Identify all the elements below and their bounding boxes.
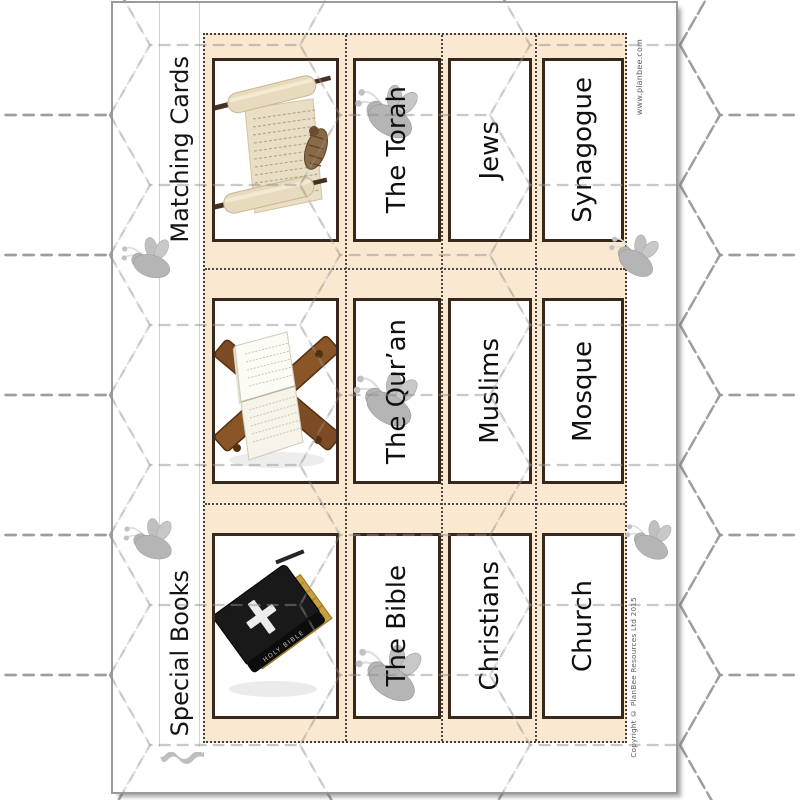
title-ribbon: Matching Cards Special Books (159, 3, 200, 747)
word-card: Muslims (448, 298, 532, 484)
lesson-title: Special Books (168, 570, 192, 736)
quran-on-stand-image (215, 301, 336, 481)
lesson-title-slot: Special Books (160, 561, 199, 745)
word-card: Mosque (542, 298, 624, 484)
unit-title: Matching Cards (168, 56, 192, 243)
word-card-label: Muslims (477, 338, 503, 444)
unit-title-slot: Matching Cards (160, 37, 199, 261)
word-card-label: Jews (477, 121, 503, 179)
word-card-label: Church (570, 580, 596, 672)
image-card-quran (212, 298, 339, 484)
word-card-label: The Bible (384, 565, 410, 686)
image-card-torah (212, 58, 339, 242)
word-card-label: Mosque (570, 341, 596, 442)
word-card-label: The Torah (384, 86, 410, 213)
word-card: Church (542, 533, 624, 719)
cut-line-vertical-1 (345, 35, 347, 741)
word-card: Christians (448, 533, 532, 719)
worksheet-page: Matching Cards Special Books www.planbee… (113, 3, 676, 792)
image-card-bible: HOLY BIBLE (212, 533, 339, 719)
ribbon-wave-decoration (157, 747, 204, 767)
word-card-label: Christians (477, 561, 503, 690)
cut-line-horizontal-1 (205, 268, 625, 270)
cut-line-vertical-2 (441, 35, 443, 741)
bee-icon (120, 515, 185, 567)
word-card-label: Synagogue (570, 77, 596, 223)
word-card-label: The Qur’an (384, 319, 410, 464)
torah-scroll-image (215, 61, 336, 239)
copyright-text: Copyright © PlanBee Resources Ltd 2015 (630, 597, 637, 758)
word-card: Jews (448, 58, 532, 242)
worksheet-scan: Matching Cards Special Books www.planbee… (0, 0, 800, 800)
open-book (233, 332, 303, 460)
website-url: www.planbee.com (636, 39, 644, 115)
word-card: Synagogue (542, 58, 624, 242)
cut-line-horizontal-2 (205, 503, 625, 505)
bible-image: HOLY BIBLE (215, 536, 336, 716)
bee-icon (621, 517, 683, 567)
cut-line-vertical-3 (535, 35, 537, 741)
bee-icon (118, 233, 185, 287)
